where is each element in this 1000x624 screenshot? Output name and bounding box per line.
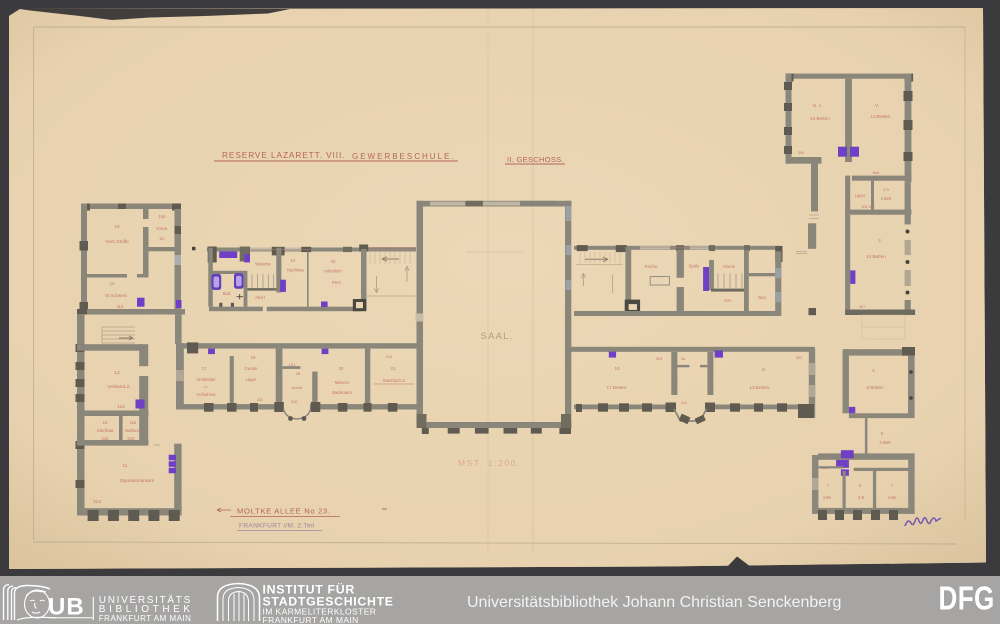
svg-text:MST. 1:200.: MST. 1:200. (458, 458, 521, 468)
svg-text:4 Be: 4 Be (888, 495, 897, 500)
svg-text:313: 313 (93, 499, 101, 505)
svg-text:Spüle: Spüle (689, 264, 701, 269)
svg-text:302: 302 (257, 398, 263, 402)
svg-text:FRANKFURT AM MAIN: FRANKFURT AM MAIN (263, 614, 359, 624)
svg-text:Küche: Küche (644, 264, 657, 269)
svg-text:II. GESCHOSS.: II. GESCHOSS. (507, 155, 564, 164)
svg-text:FRANKFURT i/M. 2.Teil: FRANKFURT i/M. 2.Teil (239, 523, 315, 530)
svg-text:13 Betten.: 13 Betten. (871, 114, 892, 119)
svg-text:14.: 14. (159, 236, 165, 241)
svg-text:3.: 3. (878, 238, 882, 243)
svg-text:44: 44 (290, 258, 295, 263)
svg-text:UB: UB (48, 593, 85, 620)
svg-text:Lager: Lager (246, 377, 258, 382)
svg-text:Wäsche: Wäsche (255, 262, 271, 267)
svg-text:DFG: DFG (939, 580, 995, 617)
svg-text:Sterilisat: Sterilisat (97, 428, 114, 433)
svg-text:131: 131 (289, 362, 296, 367)
svg-text:4 Bett: 4 Bett (879, 440, 891, 445)
svg-text:307: 307 (859, 304, 866, 309)
svg-text:10 Betten: 10 Betten (810, 116, 830, 121)
svg-text:männlich: männlich (324, 269, 342, 274)
svg-text:N. 1: N. 1 (813, 103, 822, 108)
svg-text:20: 20 (339, 366, 344, 371)
svg-text:Geräte: Geräte (244, 366, 258, 371)
svg-text:4.: 4. (872, 368, 876, 373)
svg-text:St.Schwest: St.Schwest (105, 293, 127, 298)
svg-text:Abort: Abort (255, 295, 266, 300)
svg-text:17 Betten.: 17 Betten. (607, 385, 628, 390)
svg-text:MOLTKE ALLEE No 23.: MOLTKE ALLEE No 23. (237, 507, 331, 516)
svg-text:SAAL.: SAAL. (481, 331, 514, 342)
svg-text:19: 19 (251, 355, 256, 360)
svg-text:Archiv: Archiv (291, 385, 302, 390)
svg-text:4 Bett: 4 Bett (881, 196, 893, 201)
svg-text:Narkose: Narkose (125, 428, 142, 433)
svg-text:113: 113 (681, 400, 687, 405)
svg-text:Männer: Männer (335, 380, 350, 385)
svg-text:14 Betten: 14 Betten (866, 254, 886, 259)
svg-text:Vorrat.: Vorrat. (156, 226, 168, 231)
svg-text:3 B: 3 B (858, 495, 864, 500)
svg-text:u.: u. (204, 384, 208, 389)
svg-text:Aborte: Aborte (723, 264, 736, 269)
svg-text:Universitätsbibliothek Johann: Universitätsbibliothek Johann Christian … (467, 594, 841, 611)
svg-text:11a: 11a (130, 420, 137, 425)
svg-text:13: 13 (114, 370, 120, 376)
svg-text:Baderaum: Baderaum (332, 390, 352, 395)
svg-text:43: 43 (331, 259, 336, 264)
svg-text:8 Betten: 8 Betten (866, 385, 884, 390)
svg-text:310: 310 (291, 399, 298, 404)
svg-text:113: 113 (117, 304, 124, 309)
svg-text:RESERVE LAZARETT. VIII.: RESERVE LAZARETT. VIII. (222, 150, 345, 160)
svg-text:Umkleider: Umkleider (196, 377, 216, 382)
svg-text:Operationsraum: Operationsraum (120, 478, 154, 484)
svg-text:21: 21 (391, 366, 396, 371)
svg-text:9.: 9. (762, 367, 766, 372)
svg-text:Aufnahme: Aufnahme (196, 392, 216, 397)
svg-text:15: 15 (114, 224, 120, 230)
svg-text:Pers.: Pers. (332, 280, 342, 285)
svg-text:Bad.: Bad. (223, 291, 231, 296)
svg-text:28: 28 (296, 371, 301, 376)
svg-text:11: 11 (123, 463, 128, 469)
svg-text:310: 310 (386, 355, 392, 359)
svg-text:12: 12 (103, 420, 108, 425)
svg-text:304: 304 (798, 150, 805, 155)
svg-text:13 Betten.: 13 Betten. (750, 385, 771, 390)
svg-text:10: 10 (614, 366, 620, 371)
svg-text:Bad: Bad (758, 295, 766, 300)
svg-text:Verb.Stoffe: Verb.Stoffe (105, 239, 129, 245)
svg-text:GEWERBESCHULE.: GEWERBESCHULE. (352, 152, 456, 161)
svg-text:Bad: Bad (873, 171, 880, 175)
svg-text:16a: 16a (159, 214, 167, 219)
svg-text:14: 14 (110, 281, 115, 286)
svg-text:114: 114 (117, 404, 125, 410)
svg-text:Nachtwa.: Nachtwa. (287, 268, 305, 273)
svg-text:Verband.Z.: Verband.Z. (107, 384, 130, 390)
svg-text:2 a: 2 a (883, 187, 889, 192)
svg-text:Vorr.: Vorr. (724, 298, 732, 303)
svg-text:303: 303 (656, 356, 663, 361)
svg-text:302: 302 (796, 355, 803, 360)
svg-text:V.: V. (875, 103, 879, 108)
svg-text:Wachtst.b.2: Wachtst.b.2 (383, 378, 406, 383)
svg-text:Lager: Lager (855, 193, 866, 198)
svg-text:302: 302 (859, 414, 865, 418)
svg-text:4 Be: 4 Be (823, 495, 832, 500)
svg-text:FRANKFURT AM MAIN: FRANKFURT AM MAIN (99, 614, 192, 623)
svg-text:17: 17 (202, 366, 207, 371)
svg-text:304 302: 304 302 (861, 205, 874, 209)
